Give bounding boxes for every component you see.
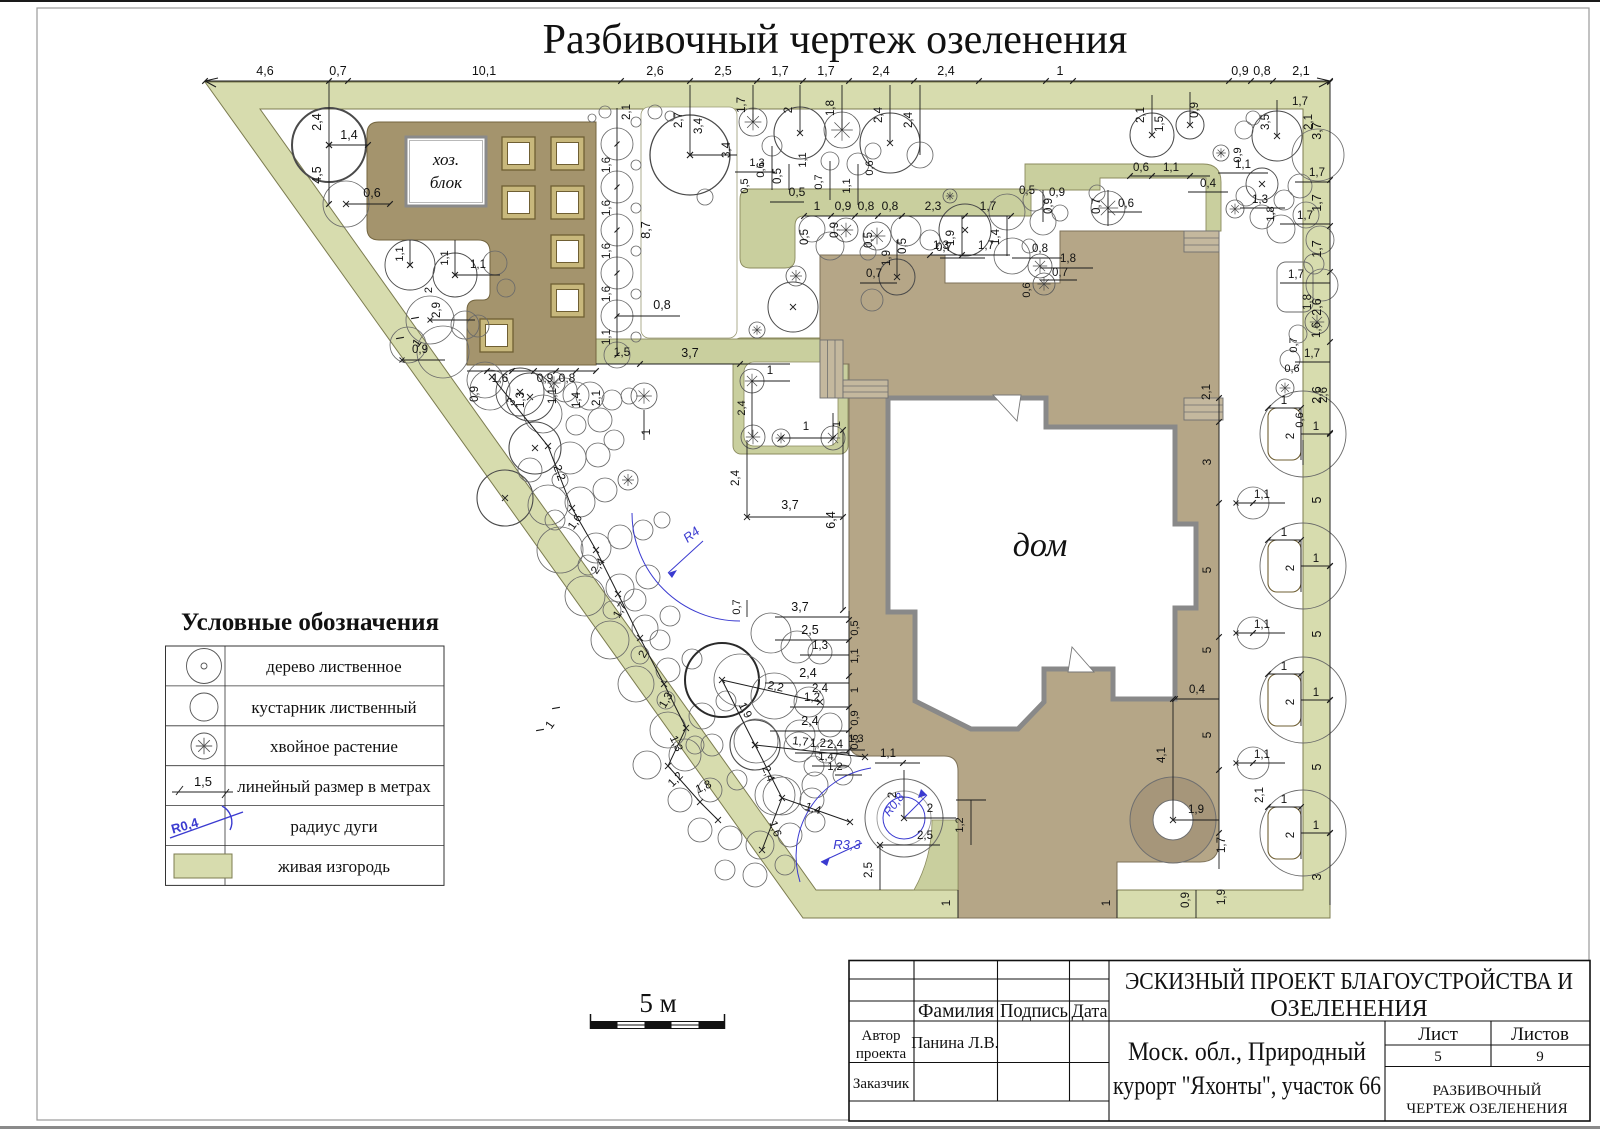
svg-text:0,5: 0,5 <box>897 238 909 254</box>
svg-text:1,6: 1,6 <box>1311 322 1323 338</box>
svg-text:3,4: 3,4 <box>721 141 733 158</box>
svg-text:1,4: 1,4 <box>340 128 357 142</box>
svg-text:1,7: 1,7 <box>817 64 834 78</box>
svg-text:8,7: 8,7 <box>639 221 653 238</box>
svg-text:1,7: 1,7 <box>1304 348 1320 360</box>
svg-text:2,5: 2,5 <box>801 623 818 637</box>
svg-text:2,6: 2,6 <box>646 64 663 78</box>
svg-text:2,1: 2,1 <box>1292 64 1309 78</box>
svg-text:1,7: 1,7 <box>736 97 748 113</box>
svg-text:1,1: 1,1 <box>1254 619 1270 631</box>
svg-text:1,8: 1,8 <box>1302 294 1314 310</box>
svg-text:РАЗБИВОЧНЫЙ: РАЗБИВОЧНЫЙ <box>1433 1082 1542 1099</box>
svg-text:дом: дом <box>1013 527 1068 564</box>
svg-text:1,7: 1,7 <box>1288 269 1304 281</box>
svg-text:0,8: 0,8 <box>1253 64 1270 78</box>
svg-text:0,5: 0,5 <box>739 178 751 193</box>
svg-text:2,4: 2,4 <box>873 106 885 123</box>
svg-text:0,9: 0,9 <box>1180 892 1192 908</box>
svg-text:Автор: Автор <box>862 1028 901 1044</box>
svg-text:0,5: 0,5 <box>863 232 875 248</box>
svg-text:Листов: Листов <box>1511 1024 1569 1045</box>
svg-text:1,9: 1,9 <box>881 250 893 266</box>
svg-text:2,4: 2,4 <box>872 64 889 78</box>
svg-text:5: 5 <box>1200 646 1214 653</box>
svg-text:2,1: 2,1 <box>1201 384 1213 400</box>
svg-text:1: 1 <box>767 365 773 377</box>
svg-text:1,9: 1,9 <box>1188 804 1204 816</box>
svg-text:Фамилия: Фамилия <box>918 1000 994 1022</box>
svg-text:5 м: 5 м <box>639 988 676 1018</box>
svg-text:2,1: 2,1 <box>1254 787 1266 803</box>
svg-text:0,5: 0,5 <box>772 168 784 184</box>
svg-text:линейный размер в метрах: линейный размер в метрах <box>237 777 431 796</box>
svg-text:2,1: 2,1 <box>591 390 603 406</box>
svg-text:0,6: 0,6 <box>1118 198 1134 210</box>
svg-text:1: 1 <box>1281 661 1287 673</box>
svg-text:ЭСКИЗНЫЙ ПРОЕКТ БЛАГОУСТРОЙСТВ: ЭСКИЗНЫЙ ПРОЕКТ БЛАГОУСТРОЙСТВА И <box>1125 969 1573 995</box>
svg-text:ОЗЕЛЕНЕНИЯ: ОЗЕЛЕНЕНИЯ <box>1270 996 1427 1022</box>
svg-text:5: 5 <box>1310 763 1324 770</box>
svg-text:1: 1 <box>1057 64 1064 78</box>
svg-text:Заказчик: Заказчик <box>853 1076 910 1092</box>
svg-text:5: 5 <box>1310 496 1324 503</box>
svg-text:1,1: 1,1 <box>394 246 406 261</box>
svg-text:1,2: 1,2 <box>810 738 826 750</box>
svg-text:4,6: 4,6 <box>256 64 273 78</box>
svg-text:2: 2 <box>1285 565 1297 571</box>
svg-text:0,9: 0,9 <box>835 199 852 213</box>
svg-text:1: 1 <box>849 687 861 693</box>
svg-text:2: 2 <box>887 792 899 798</box>
svg-text:1,7: 1,7 <box>1216 837 1228 853</box>
svg-text:1: 1 <box>1313 553 1319 565</box>
svg-text:1,1: 1,1 <box>797 152 809 167</box>
svg-text:R3,3: R3,3 <box>833 837 861 852</box>
svg-text:1,6: 1,6 <box>492 371 509 385</box>
svg-text:2: 2 <box>783 107 795 113</box>
svg-text:0,8: 0,8 <box>1032 243 1048 255</box>
svg-text:3,7: 3,7 <box>791 600 808 614</box>
svg-text:0,8: 0,8 <box>882 199 899 213</box>
svg-text:0,9: 0,9 <box>537 371 554 385</box>
svg-text:4,5: 4,5 <box>310 166 324 183</box>
svg-text:1,5: 1,5 <box>194 774 212 789</box>
svg-text:0,6: 0,6 <box>1284 363 1299 375</box>
svg-text:0,4: 0,4 <box>1200 178 1217 190</box>
svg-text:1,2: 1,2 <box>827 761 842 773</box>
svg-text:блок: блок <box>430 173 463 192</box>
svg-text:0,9: 0,9 <box>849 710 861 725</box>
svg-text:живая изгородь: живая изгородь <box>277 857 390 876</box>
svg-text:3: 3 <box>1310 873 1324 880</box>
svg-text:1,1: 1,1 <box>547 388 559 404</box>
svg-text:0,9: 0,9 <box>1231 64 1248 78</box>
svg-text:4,1: 4,1 <box>1156 747 1168 763</box>
svg-text:1,2: 1,2 <box>954 817 966 832</box>
svg-text:0,7: 0,7 <box>1052 267 1068 279</box>
svg-text:0,4: 0,4 <box>1189 684 1206 696</box>
svg-text:0,9: 0,9 <box>829 222 841 238</box>
svg-text:2: 2 <box>1285 433 1297 439</box>
svg-text:0,6: 0,6 <box>1021 282 1033 297</box>
svg-text:1,1: 1,1 <box>841 178 853 193</box>
svg-text:2,5: 2,5 <box>863 862 875 878</box>
svg-text:3: 3 <box>1200 458 1214 465</box>
svg-text:2: 2 <box>423 287 435 293</box>
svg-text:Лист: Лист <box>1418 1024 1458 1045</box>
svg-text:1,4: 1,4 <box>571 391 583 408</box>
svg-text:1,3: 1,3 <box>812 640 828 652</box>
svg-text:1: 1 <box>814 199 821 213</box>
svg-text:0,7: 0,7 <box>866 268 882 280</box>
svg-text:0,9: 0,9 <box>1232 147 1244 162</box>
svg-text:2,5: 2,5 <box>714 64 731 78</box>
svg-text:1,3: 1,3 <box>749 157 764 169</box>
svg-text:5: 5 <box>1200 731 1214 738</box>
svg-text:1: 1 <box>641 429 653 435</box>
svg-text:1,3: 1,3 <box>933 240 949 252</box>
svg-text:6,4: 6,4 <box>824 511 838 528</box>
svg-text:1,3: 1,3 <box>1252 194 1268 206</box>
svg-text:1,3: 1,3 <box>515 392 527 408</box>
svg-text:дерево лиственное: дерево лиственное <box>266 657 401 676</box>
svg-text:2,4: 2,4 <box>730 469 742 486</box>
svg-text:0,5: 0,5 <box>849 620 861 635</box>
svg-text:хвойное растение: хвойное растение <box>270 737 398 756</box>
svg-text:2,4: 2,4 <box>736 400 748 415</box>
svg-text:0,6: 0,6 <box>1133 162 1149 174</box>
svg-text:1,6: 1,6 <box>601 243 613 259</box>
svg-text:0,5: 0,5 <box>1019 185 1035 197</box>
svg-text:1: 1 <box>941 900 953 906</box>
svg-text:0,6: 0,6 <box>1294 412 1306 427</box>
svg-text:проекта: проекта <box>856 1046 907 1062</box>
svg-text:1: 1 <box>1313 687 1319 699</box>
svg-text:Моск. обл., Природный: Моск. обл., Природный <box>1128 1037 1366 1066</box>
svg-text:1,7: 1,7 <box>980 199 997 213</box>
svg-text:1,7: 1,7 <box>792 735 809 749</box>
svg-text:1: 1 <box>1313 421 1319 433</box>
svg-text:0,7: 0,7 <box>329 64 346 78</box>
svg-text:1: 1 <box>1313 820 1319 832</box>
svg-text:2,3: 2,3 <box>925 199 942 213</box>
svg-text:радиус дуги: радиус дуги <box>290 817 377 836</box>
svg-text:1,7: 1,7 <box>978 240 994 252</box>
svg-text:2,4: 2,4 <box>801 714 818 728</box>
svg-text:2,4: 2,4 <box>937 64 954 78</box>
svg-text:0,6: 0,6 <box>363 186 380 200</box>
svg-text:2,4: 2,4 <box>827 739 844 751</box>
svg-text:1,7: 1,7 <box>771 64 788 78</box>
svg-text:2,5: 2,5 <box>917 830 933 842</box>
svg-text:2,4: 2,4 <box>799 666 816 680</box>
svg-text:1,7: 1,7 <box>1310 240 1324 257</box>
svg-text:0,8: 0,8 <box>858 199 875 213</box>
svg-text:1: 1 <box>1281 395 1287 407</box>
svg-text:0,7: 0,7 <box>1091 198 1103 214</box>
svg-text:0,5: 0,5 <box>789 185 806 199</box>
svg-text:3,4: 3,4 <box>693 117 705 134</box>
svg-text:1,3: 1,3 <box>848 733 863 745</box>
svg-text:1: 1 <box>831 421 843 427</box>
svg-text:Панина Л.В.: Панина Л.В. <box>911 1033 999 1052</box>
svg-text:2,9: 2,9 <box>431 302 443 318</box>
svg-text:0,9: 0,9 <box>1189 102 1201 118</box>
svg-text:1: 1 <box>803 421 809 433</box>
svg-text:0,8: 0,8 <box>653 298 670 312</box>
svg-text:1,8: 1,8 <box>1265 206 1277 221</box>
svg-text:1,1: 1,1 <box>470 259 486 271</box>
svg-text:2,1: 2,1 <box>1135 107 1147 123</box>
svg-text:1,1: 1,1 <box>601 329 613 345</box>
svg-text:9: 9 <box>1536 1049 1544 1065</box>
svg-text:1: 1 <box>1101 900 1113 906</box>
svg-text:1: 1 <box>1281 527 1287 539</box>
svg-text:1,7: 1,7 <box>1292 96 1308 108</box>
svg-text:0,7: 0,7 <box>731 599 743 614</box>
svg-text:2: 2 <box>927 803 933 815</box>
svg-text:Дата: Дата <box>1072 1001 1109 1022</box>
svg-text:1,7: 1,7 <box>1297 210 1313 222</box>
svg-text:1,1: 1,1 <box>849 648 861 663</box>
svg-text:ЧЕРТЕЖ ОЗЕЛЕНЕНИЯ: ЧЕРТЕЖ ОЗЕЛЕНЕНИЯ <box>1406 1101 1567 1117</box>
svg-text:0,7: 0,7 <box>1288 337 1300 352</box>
svg-text:1,8: 1,8 <box>1060 253 1076 265</box>
svg-text:0,8: 0,8 <box>559 371 576 385</box>
svg-text:10,1: 10,1 <box>472 64 496 78</box>
svg-text:2,7: 2,7 <box>673 112 685 128</box>
svg-text:1,5: 1,5 <box>614 345 631 359</box>
svg-text:1,6: 1,6 <box>601 157 613 173</box>
svg-text:0,5: 0,5 <box>799 229 811 245</box>
svg-text:1,1: 1,1 <box>439 250 451 265</box>
svg-text:Условные обозначения: Условные обозначения <box>181 609 439 636</box>
svg-text:2: 2 <box>1285 832 1297 838</box>
svg-text:кустарник лиственный: кустарник лиственный <box>251 698 416 717</box>
svg-text:5: 5 <box>1434 1049 1442 1065</box>
svg-text:2,1: 2,1 <box>1303 114 1315 130</box>
svg-text:0,6: 0,6 <box>864 160 876 175</box>
svg-text:2,1: 2,1 <box>621 104 633 120</box>
svg-text:2: 2 <box>1285 699 1297 705</box>
svg-text:1,1: 1,1 <box>1254 749 1270 761</box>
svg-text:1,5: 1,5 <box>1154 116 1166 132</box>
svg-text:0,9: 0,9 <box>1049 187 1065 199</box>
svg-text:5: 5 <box>1310 630 1324 637</box>
svg-text:2,6: 2,6 <box>1318 387 1330 403</box>
svg-text:3,5: 3,5 <box>1260 114 1272 130</box>
svg-text:1,7: 1,7 <box>1309 167 1325 179</box>
svg-text:2,4: 2,4 <box>310 113 324 130</box>
svg-text:3,7: 3,7 <box>681 346 698 360</box>
svg-text:1,1: 1,1 <box>1254 489 1270 501</box>
svg-text:0,9: 0,9 <box>1043 198 1055 214</box>
svg-text:3,7: 3,7 <box>781 498 798 512</box>
svg-text:1,6: 1,6 <box>601 286 613 302</box>
svg-text:1: 1 <box>1281 794 1287 806</box>
svg-text:1,8: 1,8 <box>825 100 837 116</box>
svg-text:Разбивочный чертеж озеленения: Разбивочный чертеж озеленения <box>543 17 1128 63</box>
svg-text:1,6: 1,6 <box>601 200 613 216</box>
svg-text:хоз.: хоз. <box>432 150 459 169</box>
svg-text:2,4: 2,4 <box>903 111 915 128</box>
svg-text:1,1: 1,1 <box>880 748 896 760</box>
svg-text:0,9: 0,9 <box>469 386 481 402</box>
svg-text:1,1: 1,1 <box>1163 162 1179 174</box>
svg-text:1,9: 1,9 <box>1216 889 1228 905</box>
svg-text:2,4: 2,4 <box>812 683 829 695</box>
svg-text:0,7: 0,7 <box>813 174 825 189</box>
svg-text:Подпись: Подпись <box>1000 1000 1068 1022</box>
svg-text:курорт "Яхонты", участок 66: курорт "Яхонты", участок 66 <box>1113 1071 1381 1100</box>
svg-text:5: 5 <box>1200 566 1214 573</box>
